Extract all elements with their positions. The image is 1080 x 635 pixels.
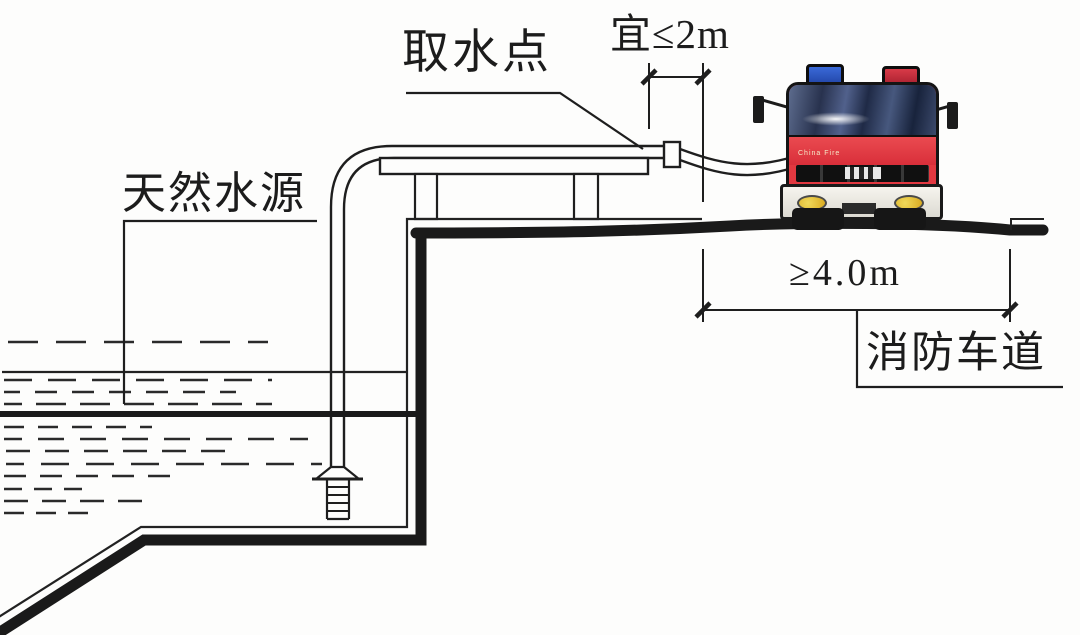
truck-front-panel: China Fire <box>789 137 936 165</box>
truck-front-text: China Fire <box>798 150 840 157</box>
truck-right-wheel <box>874 208 926 230</box>
pipe-strainer <box>312 467 363 519</box>
truck-license-plate <box>842 203 876 214</box>
truck-windshield <box>789 85 936 137</box>
diagram-canvas: China Fire 取水点 天然水源 宜≤2m ≥4.0m 消防车道 <box>0 0 1080 635</box>
water-surface <box>0 372 419 414</box>
truck-cab: China Fire <box>786 82 939 196</box>
truck-left-wheel <box>792 208 844 230</box>
lane-width-dimension-text: ≥4.0m <box>789 254 902 292</box>
dimension-intake-offset <box>642 63 710 322</box>
truck-left-mirror <box>753 96 764 123</box>
truck-left-mirror-arm <box>761 98 788 108</box>
fire-truck: China Fire <box>750 56 960 232</box>
truck-right-mirror <box>947 102 958 129</box>
truck-grille <box>796 165 929 182</box>
intake-point-label: 取水点 <box>402 30 552 77</box>
intake-platform <box>380 158 648 219</box>
natural-water-source-label: 天然水源 <box>122 172 306 216</box>
fire-lane-label: 消防车道 <box>866 332 1046 375</box>
water-dashes <box>4 342 322 513</box>
suction-pipe <box>331 146 667 467</box>
intake-offset-dimension-text: 宜≤2m <box>610 14 730 55</box>
label-leaders <box>124 93 643 404</box>
truck-grille-badge <box>845 167 881 179</box>
